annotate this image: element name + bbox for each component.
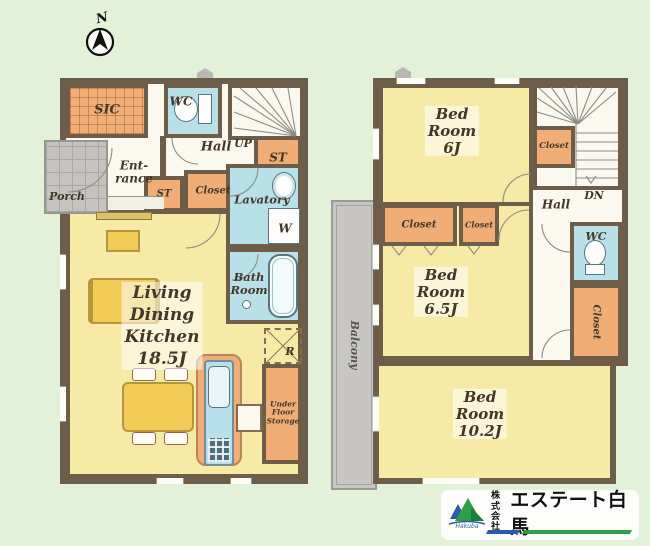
bathtub-inner-line — [272, 258, 294, 314]
toilet-icon — [584, 240, 606, 266]
label-wc-1f: WC — [169, 95, 192, 108]
window — [373, 244, 379, 270]
window — [373, 304, 379, 326]
tv-icon — [106, 230, 140, 252]
window — [373, 128, 379, 160]
window — [422, 478, 480, 484]
label-ldk-line4: 18.5J — [125, 348, 200, 370]
label-hall-2f: Hall — [542, 198, 570, 211]
label-closet-2f-wide: Closet — [401, 219, 436, 230]
label-closet-2f-vertical: Closet — [590, 304, 601, 339]
floor-hatch-icon — [236, 404, 262, 432]
label-entrance-line2: rance — [115, 173, 153, 186]
logo-prefix-line1: 株式 — [491, 491, 507, 512]
label-dn: DN — [584, 190, 604, 202]
label-entrance: Ent- rance — [115, 160, 153, 187]
floorplan-canvas: N — [0, 0, 650, 546]
bath-drain-icon — [242, 300, 251, 309]
label-closet-1f: Closet — [195, 185, 230, 196]
logo-underline-green — [522, 530, 632, 534]
label-bath: Bath Room — [230, 271, 267, 297]
label-bed-6-5j: Bed Room 6.5J — [414, 267, 468, 317]
vent-icon — [395, 67, 411, 78]
label-bed102-line2: Room — [456, 406, 504, 423]
entrance-step — [108, 196, 164, 209]
logo-underline-blue — [486, 530, 520, 534]
dining-chair-icon — [132, 432, 156, 445]
label-bed6-line1: Bed — [428, 106, 476, 123]
label-wc-2f: WC — [585, 231, 606, 243]
window — [494, 78, 520, 84]
label-lavatory: Lavatory — [234, 194, 289, 207]
label-bed6-line2: Room — [428, 123, 476, 140]
logo-script-label: Hakuba — [456, 523, 479, 529]
window — [396, 78, 426, 84]
bathtub-icon — [268, 254, 298, 318]
label-ldk-line2: Dining — [125, 304, 200, 326]
label-sic: SIC — [94, 104, 120, 119]
window — [60, 254, 66, 290]
entrance-wall-segment — [160, 136, 166, 176]
logo-company-prefix: 株式 会社 — [491, 491, 507, 532]
label-balcony: Balcony — [348, 320, 360, 369]
label-up: UP — [234, 138, 252, 150]
label-ldk-line1: Living — [125, 282, 200, 304]
label-bed65-line1: Bed — [417, 267, 465, 284]
label-bed102-line1: Bed — [456, 389, 504, 406]
label-bed-6j: Bed Room 6J — [425, 106, 479, 156]
label-entrance-line1: Ent- — [115, 160, 153, 173]
window — [60, 386, 66, 422]
label-ldk: Living Dining Kitchen 18.5J — [122, 282, 203, 370]
label-hall-1f: Hall — [201, 141, 232, 156]
label-st-lower: ST — [157, 188, 172, 199]
fridge-cross-icon — [266, 330, 300, 362]
label-ldk-line3: Kitchen — [125, 326, 200, 348]
window — [156, 478, 184, 484]
north-arrow-icon: N — [78, 8, 122, 62]
label-under-floor-storage: Under Floor Storage — [267, 400, 300, 425]
toilet-tank-icon — [198, 94, 212, 124]
label-bath-line1: Bath — [230, 271, 267, 284]
toilet-tank-icon — [585, 264, 605, 275]
kitchen-sink-icon — [208, 366, 230, 408]
stove-icon — [208, 438, 230, 462]
label-bed102-line3: 10.2J — [456, 422, 504, 439]
label-bed65-line3: 6.5J — [417, 300, 465, 317]
company-logo: Hakuba 株式 会社 エステート白馬 — [441, 490, 639, 540]
label-bed-10-2j: Bed Room 10.2J — [453, 389, 507, 439]
label-closet-2f-small: Closet — [465, 221, 493, 230]
dining-chair-icon — [164, 432, 188, 445]
compass-n-label: N — [94, 10, 111, 28]
mountain-logo-icon: Hakuba — [447, 495, 487, 529]
label-bath-line2: Room — [230, 284, 267, 297]
label-bed65-line2: Room — [417, 284, 465, 301]
window — [373, 396, 379, 432]
label-bed6-line3: 6J — [428, 139, 476, 156]
label-fridge: R — [285, 346, 294, 358]
label-ufs-line3: Storage — [267, 417, 300, 425]
stairs-1f — [228, 84, 304, 140]
label-st-upper: ST — [269, 151, 287, 164]
label-washer: W — [278, 222, 291, 235]
tv-board-icon — [96, 212, 152, 220]
dining-table-icon — [122, 382, 194, 432]
label-porch: Porch — [49, 191, 85, 203]
window — [230, 478, 252, 484]
label-closet-2f-stair: Closet — [539, 142, 569, 152]
